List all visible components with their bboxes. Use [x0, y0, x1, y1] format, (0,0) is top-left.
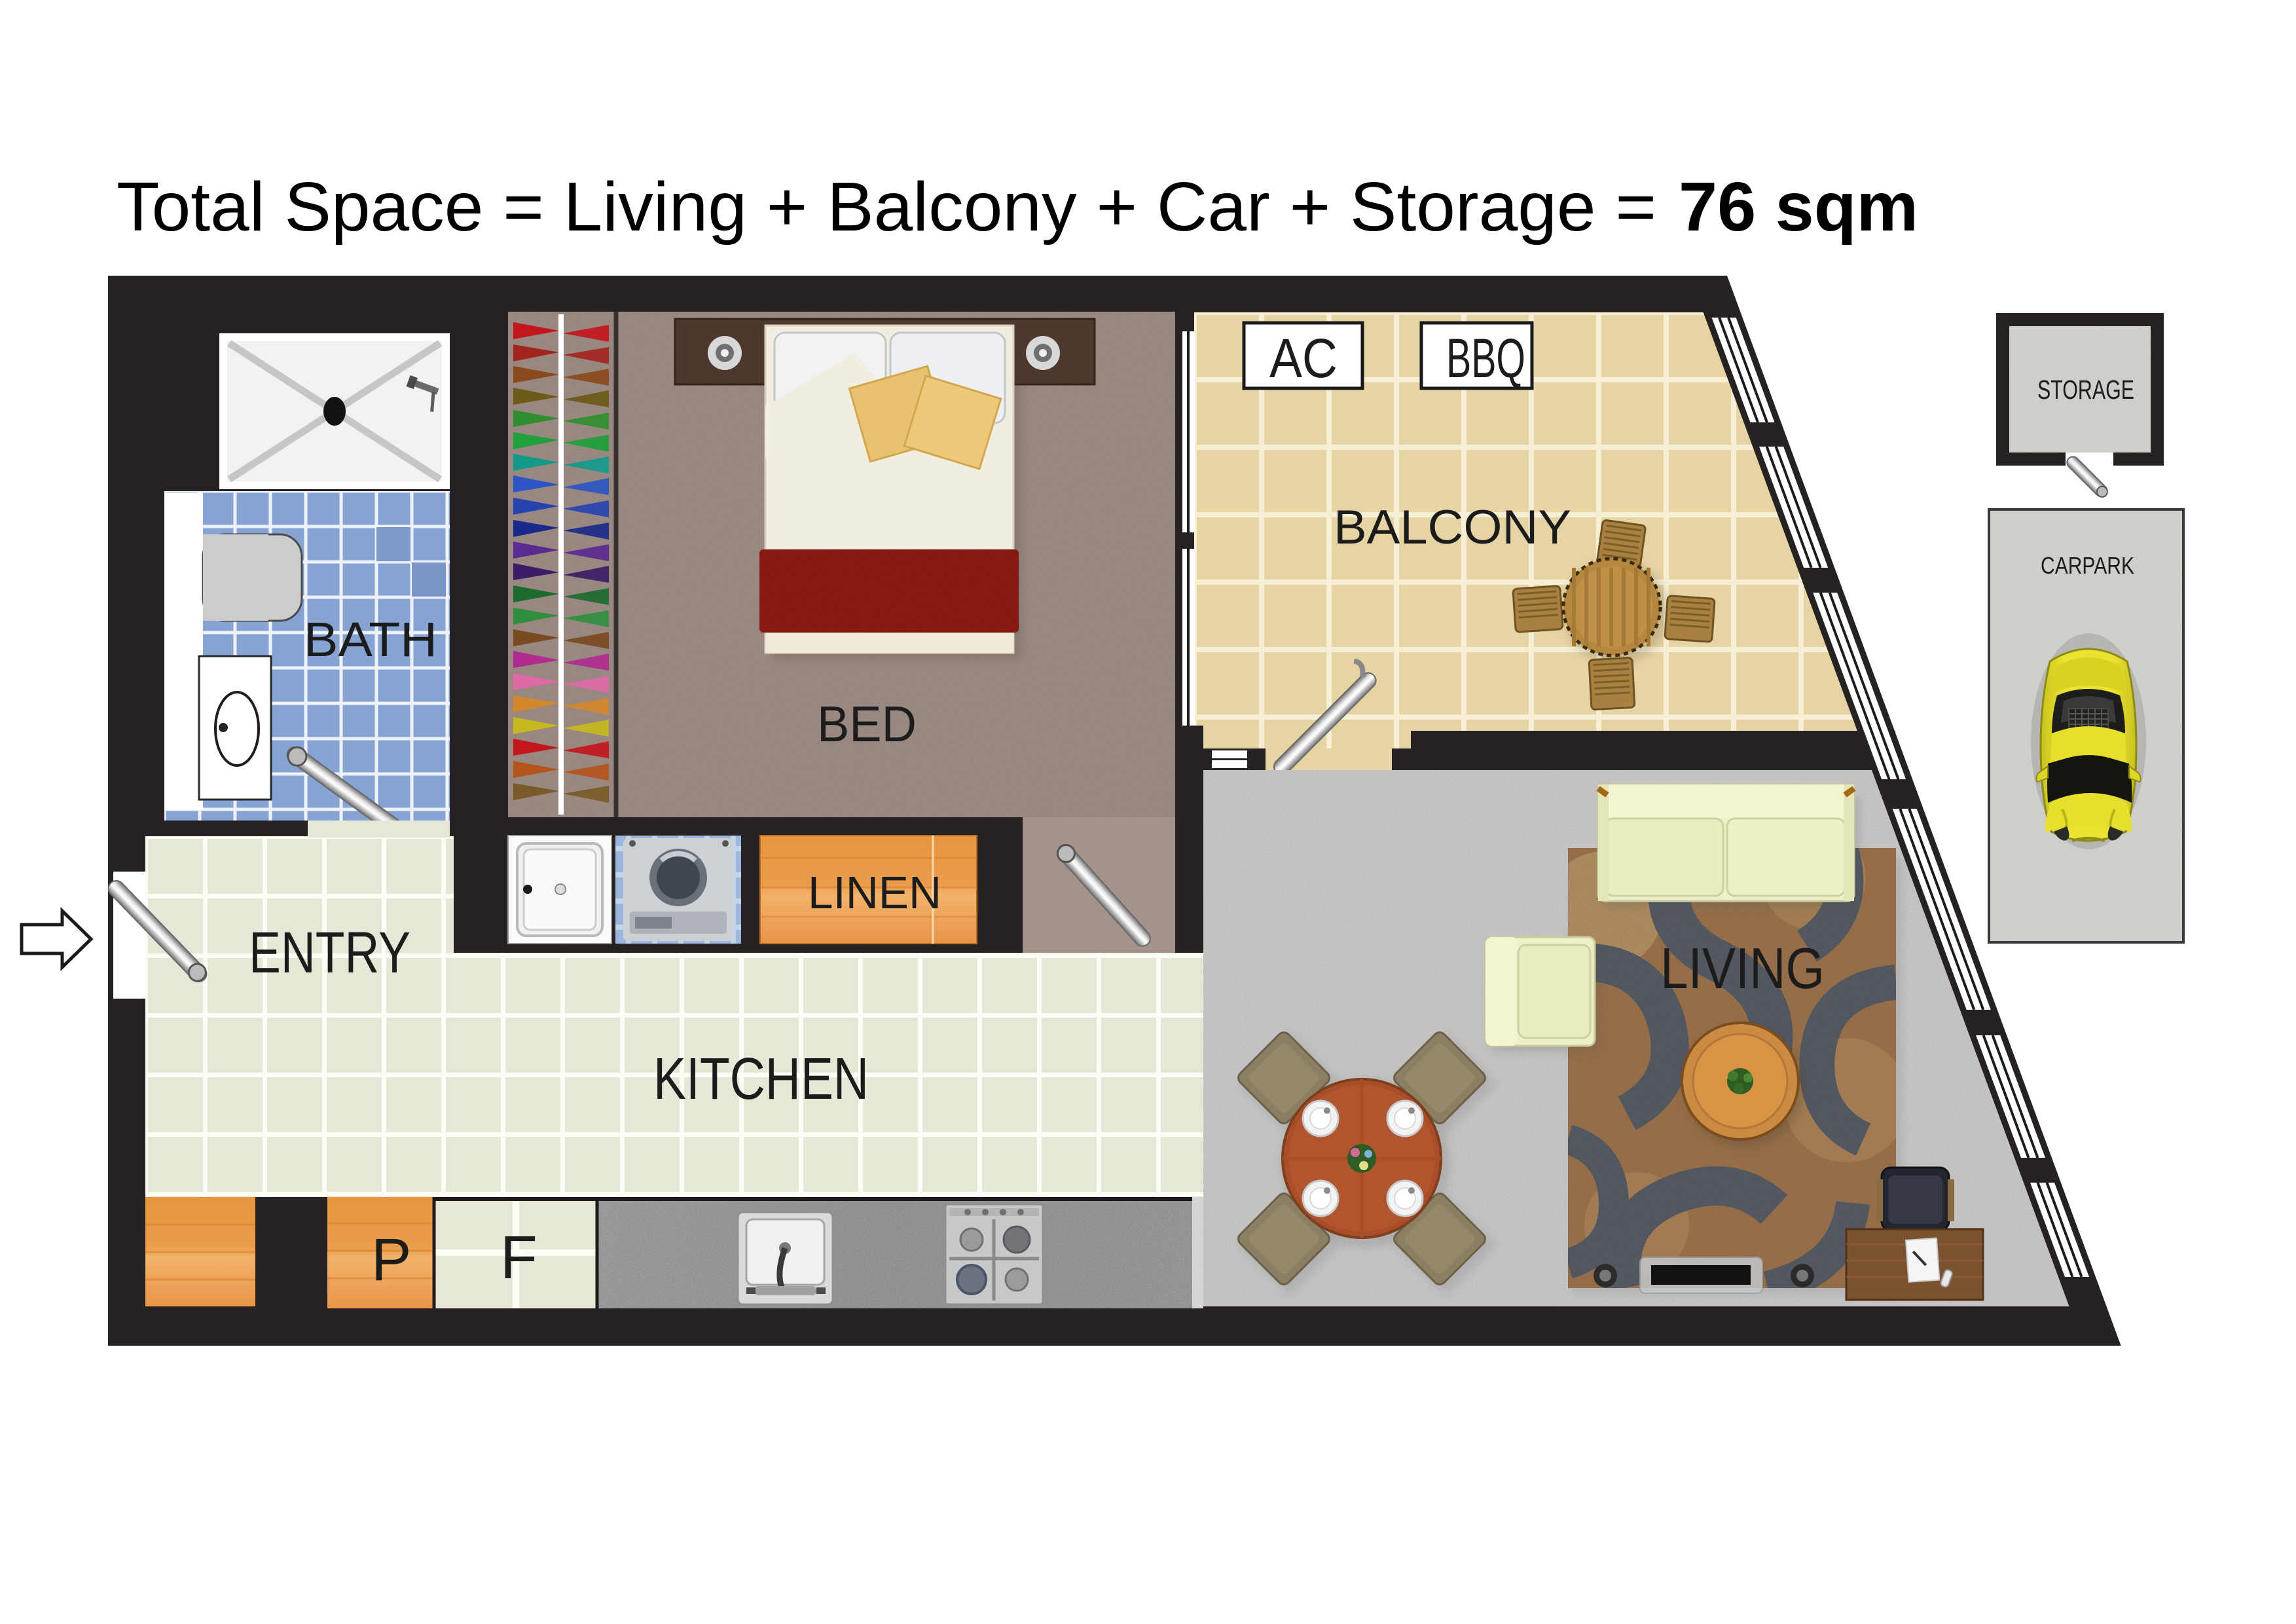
svg-text:BALCONY: BALCONY	[1334, 501, 1571, 554]
svg-text:Total Space = Living + Balcony: Total Space = Living + Balcony + Car + S…	[117, 168, 1656, 246]
svg-text:F: F	[500, 1223, 538, 1291]
svg-text:76 sqm: 76 sqm	[1679, 168, 1918, 246]
svg-text:LIVING: LIVING	[1660, 936, 1825, 1001]
svg-text:CARPARK: CARPARK	[2041, 552, 2134, 579]
svg-text:BED: BED	[817, 696, 917, 752]
svg-text:LINEN: LINEN	[808, 867, 941, 918]
svg-text:P: P	[371, 1227, 411, 1293]
svg-text:BATH: BATH	[304, 612, 437, 667]
svg-text:STORAGE: STORAGE	[2037, 375, 2134, 405]
svg-text:KITCHEN: KITCHEN	[653, 1046, 869, 1112]
svg-text:ENTRY: ENTRY	[249, 919, 410, 985]
svg-text:AC: AC	[1269, 327, 1338, 389]
svg-text:BBQ: BBQ	[1446, 327, 1525, 389]
